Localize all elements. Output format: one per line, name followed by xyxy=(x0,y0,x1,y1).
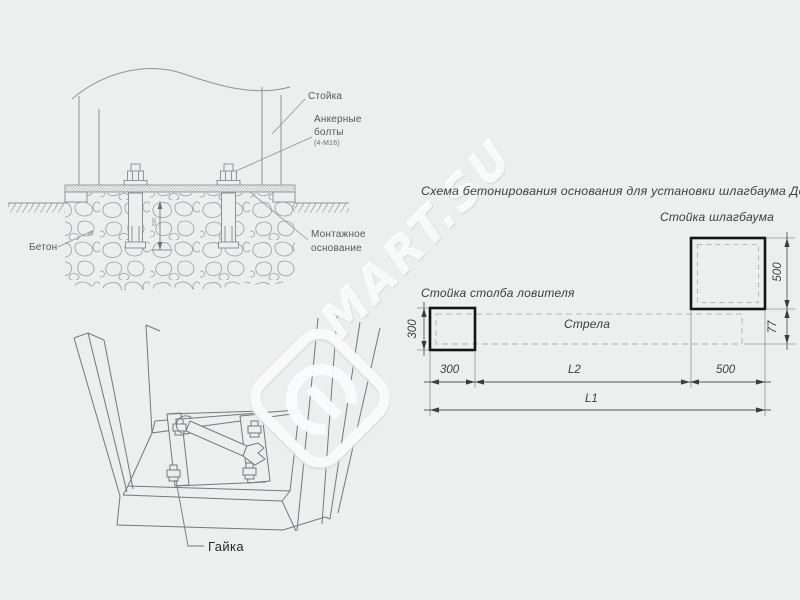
section-view xyxy=(8,69,349,293)
dim-boom-height: 77 xyxy=(767,321,779,334)
mounting-base-label-line2: основание xyxy=(311,243,362,255)
concrete-label: Бетон xyxy=(29,242,57,254)
barrier-post-inner-dashed xyxy=(698,245,759,303)
dim-post-height: 500 xyxy=(772,262,784,281)
barrier-post-square xyxy=(691,238,765,309)
boom-label: Стрела xyxy=(564,317,610,331)
pit-rim xyxy=(117,410,330,531)
anchor-bolts-label-line1: Анкерные xyxy=(314,114,362,126)
mounting-base-label-line1: Монтажное xyxy=(311,229,366,241)
drawing-sheet: MART.SU Стойка Анкерные болты (4-М16) Мо… xyxy=(0,0,800,600)
barrier-post-label: Стойка шлагбаума xyxy=(660,210,772,224)
dim-post-width: 500 xyxy=(716,364,735,376)
post-section xyxy=(72,69,290,185)
plan-title: Схема бетонирования основания для устано… xyxy=(421,184,800,198)
dim-catcher-height: 300 xyxy=(407,319,419,338)
pit-right-wall xyxy=(297,316,380,531)
anchor-bolts-spec: (4-М16) xyxy=(314,140,340,148)
dim-l1: L1 xyxy=(585,393,598,405)
dim-catcher-width: 300 xyxy=(440,364,459,376)
nut-leader xyxy=(176,480,204,546)
anchor-bolts-label-line2: болты xyxy=(314,127,344,139)
line-art xyxy=(0,0,800,600)
post-label: Стойка xyxy=(308,91,342,103)
depth-dim-text: 500 xyxy=(152,218,158,226)
catcher-post-label: Стойка столба ловителя xyxy=(421,286,575,300)
pit-back-wall xyxy=(146,325,160,433)
nut-label: Гайка xyxy=(208,540,244,555)
concrete-fill xyxy=(65,193,295,293)
pit-view xyxy=(74,316,380,546)
pit-left-wall xyxy=(74,333,133,496)
dim-l2: L2 xyxy=(568,364,581,376)
